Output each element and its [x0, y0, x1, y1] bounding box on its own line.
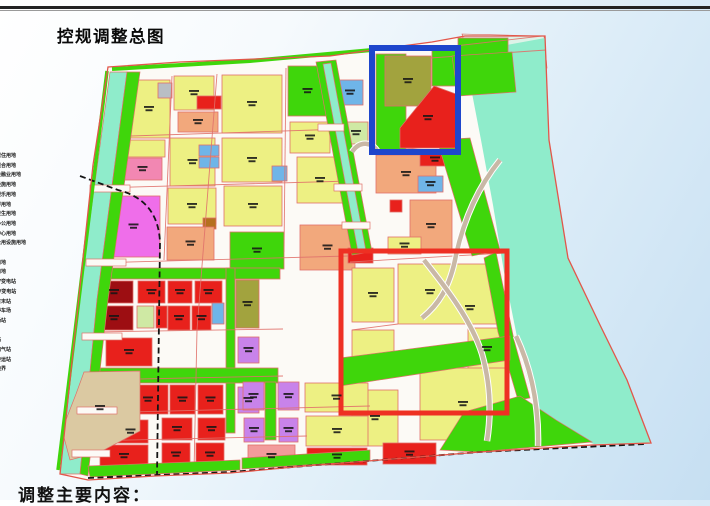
parcel-label-mark: [205, 292, 212, 294]
parcel-label-mark: [248, 203, 258, 205]
parcel-label-mark: [143, 397, 153, 399]
legend-item: 消防站: [0, 336, 26, 346]
map-parcel: [418, 176, 443, 192]
parcel-label-mark: [174, 315, 184, 317]
parcel-label-mark: [423, 115, 433, 117]
parcel-label-mark: [189, 90, 199, 92]
map-parcel: [106, 338, 152, 366]
parcel-label-mark: [317, 180, 324, 182]
parcel-label-mark: [111, 318, 118, 320]
legend-item: 广场用地: [0, 259, 26, 269]
parcel-label-mark: [333, 398, 340, 400]
map-parcel: [452, 52, 516, 96]
parcel-label-mark: [146, 109, 153, 111]
map-parcel: [198, 418, 225, 440]
parcel-label-mark: [243, 301, 253, 303]
slide-background: { "title": "控规调整总图", "footer": "调整主要内容："…: [0, 0, 710, 500]
parcel-label-mark: [173, 455, 180, 457]
parcel-label-mark: [347, 93, 354, 95]
legend-item: 社会停车场: [0, 307, 26, 317]
road-crossing: [77, 407, 117, 414]
parcel-label-mark: [267, 453, 277, 455]
parcel-label-mark: [252, 248, 262, 250]
parcel-label-mark: [109, 315, 119, 317]
parcel-label-mark: [425, 289, 435, 291]
parcel-label-mark: [204, 289, 214, 291]
road-crossing: [342, 222, 370, 229]
legend-item: 医疗卫生用地: [0, 210, 26, 220]
legend-item: 文化娱乐用地: [0, 191, 26, 201]
map-parcel: [279, 418, 298, 442]
map-parcel: [95, 268, 280, 279]
parcel-label-mark: [197, 315, 207, 317]
parcel-label-mark: [172, 426, 182, 428]
parcel-label-mark: [332, 454, 342, 456]
parcel-label-mark: [406, 454, 413, 456]
parcel-label-mark: [403, 174, 410, 176]
parcel-label-mark: [428, 226, 435, 228]
parcel-label-mark: [482, 346, 492, 348]
parcel-label-mark: [198, 318, 205, 320]
map-parcel: [238, 337, 259, 363]
parcel-label-mark: [178, 397, 188, 399]
parcel-label-mark: [284, 393, 294, 395]
parcel-label-mark: [427, 292, 434, 294]
parcel-label-mark: [332, 395, 342, 397]
map-parcel: [125, 140, 165, 157]
parcel-label-mark: [334, 457, 341, 459]
legend-item: 二类居住用地: [0, 152, 26, 162]
map-parcel: [226, 268, 235, 433]
parcel-label-mark: [254, 251, 261, 253]
map-parcel: [137, 306, 154, 328]
legend-item: 220KV变电站: [0, 288, 26, 298]
parcel-label-mark: [147, 289, 157, 291]
parcel-label-mark: [285, 430, 292, 432]
parcel-label-mark: [205, 452, 215, 454]
parcel-label-mark: [370, 415, 380, 417]
parcel-label-mark: [126, 352, 133, 354]
parcel-label-mark: [175, 289, 185, 291]
parcel-label-mark: [303, 88, 313, 90]
parcel-label-mark: [193, 119, 203, 121]
parcel-label-mark: [323, 245, 333, 247]
legend-item: 铁路: [0, 375, 26, 385]
map-parcel: [390, 200, 402, 212]
parcel-label-mark: [249, 427, 259, 429]
parcel-label-mark: [148, 292, 155, 294]
parcel-label-mark: [195, 122, 202, 124]
legend-item: 绿地: [0, 249, 26, 259]
parcel-label-mark: [176, 318, 183, 320]
parcel-label-mark: [249, 393, 259, 395]
parcel-label-mark: [430, 157, 440, 159]
parcel-label-mark: [372, 418, 379, 420]
legend-item: 中小学用地: [0, 201, 26, 211]
parcel-label-mark: [245, 350, 252, 352]
map-parcel: [300, 225, 355, 270]
map-parcel: [224, 186, 282, 226]
legend-list: 二类居住用地商住混合用地商业金融业用地公共设施用地文化娱乐用地中小学用地医疗卫生…: [0, 152, 26, 385]
map-parcel: [352, 268, 394, 322]
road-crossing: [72, 450, 110, 457]
map-parcel: [306, 416, 368, 446]
parcel-label-mark: [284, 427, 294, 429]
parcel-label-mark: [188, 159, 198, 161]
map-parcel: [162, 418, 192, 440]
parcel-label-mark: [458, 401, 468, 403]
parcel-label-mark: [244, 304, 251, 306]
legend-item: 市政公用设施用地: [0, 239, 26, 249]
map-parcel: [156, 306, 167, 328]
parcel-label-mark: [249, 104, 256, 106]
parcel-label-mark: [187, 244, 194, 246]
parcel-label-mark: [465, 305, 475, 307]
parcel-label-mark: [207, 400, 214, 402]
map-parcel: [383, 443, 436, 464]
map-parcel: [236, 280, 259, 328]
parcel-label-mark: [177, 292, 184, 294]
parcel-label-mark: [250, 206, 257, 208]
parcel-label-mark: [304, 91, 311, 93]
parcel-label-mark: [189, 162, 196, 164]
map-parcel: [278, 382, 299, 410]
parcel-label-mark: [244, 347, 254, 349]
parcel-label-mark: [425, 118, 432, 120]
parcel-label-mark: [467, 308, 474, 310]
planning-map-image: [0, 0, 710, 500]
map-parcel: [222, 75, 282, 133]
parcel-label-mark: [171, 452, 181, 454]
road-crossing: [318, 124, 344, 131]
parcel-label-mark: [401, 246, 408, 248]
parcel-label-mark: [130, 227, 137, 229]
parcel-label-mark: [191, 93, 198, 95]
parcel-label-mark: [400, 243, 410, 245]
parcel-label-mark: [174, 429, 181, 431]
map-parcel: [168, 281, 192, 303]
map-parcel: [199, 157, 219, 168]
map-parcel: [212, 303, 224, 324]
footer-heading: 调整主要内容：: [18, 481, 151, 506]
parcel-label-mark: [250, 396, 257, 398]
parcel-label-mark: [207, 455, 214, 457]
legend-item: 公交场站: [0, 317, 26, 327]
map-parcel: [265, 382, 276, 440]
legend-item: 规划边界: [0, 365, 26, 375]
parcel-label-mark: [207, 426, 217, 428]
parcel-label-mark: [405, 451, 415, 453]
parcel-label-mark: [97, 408, 104, 410]
parcel-label-mark: [324, 248, 331, 250]
parcel-label-mark: [247, 101, 257, 103]
parcel-label-mark: [187, 203, 197, 205]
parcel-label-mark: [285, 396, 292, 398]
parcel-label-mark: [126, 429, 136, 431]
parcel-label-mark: [368, 292, 378, 294]
parcel-label-mark: [179, 400, 186, 402]
parcel-label-mark: [315, 177, 325, 179]
parcel-label-mark: [249, 160, 256, 162]
parcel-label-mark: [121, 456, 128, 458]
parcel-label-mark: [427, 184, 434, 186]
parcel-label-mark: [95, 405, 105, 407]
map-parcel: [123, 158, 162, 180]
map-parcel: [244, 418, 264, 442]
parcel-label-mark: [124, 349, 134, 351]
parcel-label-mark: [139, 169, 146, 171]
parcel-label-mark: [351, 130, 361, 132]
map-parcel: [138, 281, 165, 303]
road-crossing: [90, 185, 130, 192]
parcel-label-mark: [127, 432, 134, 434]
parcel-label-mark: [305, 135, 315, 137]
parcel-label-mark: [145, 400, 152, 402]
parcel-label-mark: [432, 160, 439, 162]
map-parcel: [170, 385, 195, 414]
map-parcel: [243, 382, 264, 410]
parcel-label-mark: [129, 224, 139, 226]
map-parcel: [197, 96, 221, 109]
parcel-label-mark: [401, 171, 411, 173]
parcel-label-mark: [251, 430, 258, 432]
road-crossing: [82, 333, 122, 340]
legend-item: 110KV变电站: [0, 278, 26, 288]
parcel-label-mark: [484, 349, 491, 351]
parcel-label-mark: [334, 431, 341, 433]
parcel-label-mark: [186, 241, 196, 243]
map-parcel: [199, 145, 219, 156]
parcel-label-mark: [370, 295, 377, 297]
parcel-label-mark: [332, 428, 342, 430]
map-parcel: [168, 306, 190, 330]
legend-item: 商住混合用地: [0, 162, 26, 172]
parcel-label-mark: [111, 292, 118, 294]
legend-item: 垃圾转运站: [0, 356, 26, 366]
map-parcel: [158, 83, 172, 98]
parcel-label-mark: [189, 206, 196, 208]
parcel-label-mark: [460, 404, 467, 406]
parcel-label-mark: [144, 106, 154, 108]
parcel-label-mark: [353, 133, 360, 135]
parcel-label-mark: [109, 289, 119, 291]
parcel-label-mark: [268, 456, 275, 458]
legend-item: 公共设施用地: [0, 181, 26, 191]
parcel-label-mark: [426, 181, 436, 183]
parcel-label-mark: [138, 166, 148, 168]
parcel-label-mark: [208, 429, 215, 431]
legend-item: 加油加气站: [0, 346, 26, 356]
legend-item: 公交首末站: [0, 298, 26, 308]
map-parcel: [230, 232, 284, 269]
parcel-label-mark: [245, 400, 252, 402]
parcel-label-mark: [405, 81, 412, 83]
parcel-label-mark: [206, 397, 216, 399]
map-parcel: [167, 227, 214, 260]
legend-item: 行政办公用地: [0, 220, 26, 230]
legend-item: 社区中心用地: [0, 230, 26, 240]
legend-item: 商业金融业用地: [0, 171, 26, 181]
legend-item: 泵站: [0, 327, 26, 337]
parcel-label-mark: [426, 223, 436, 225]
parcel-label-mark: [345, 90, 355, 92]
parcel-label-mark: [307, 138, 314, 140]
legend-item: 道路用地: [0, 268, 26, 278]
road-crossing: [86, 259, 126, 266]
parcel-label-mark: [119, 453, 129, 455]
map-parcel: [178, 112, 218, 132]
road-crossing: [334, 184, 362, 191]
map-parcel: [192, 306, 211, 330]
parcel-label-mark: [403, 78, 413, 80]
parcel-label-mark: [247, 157, 257, 159]
